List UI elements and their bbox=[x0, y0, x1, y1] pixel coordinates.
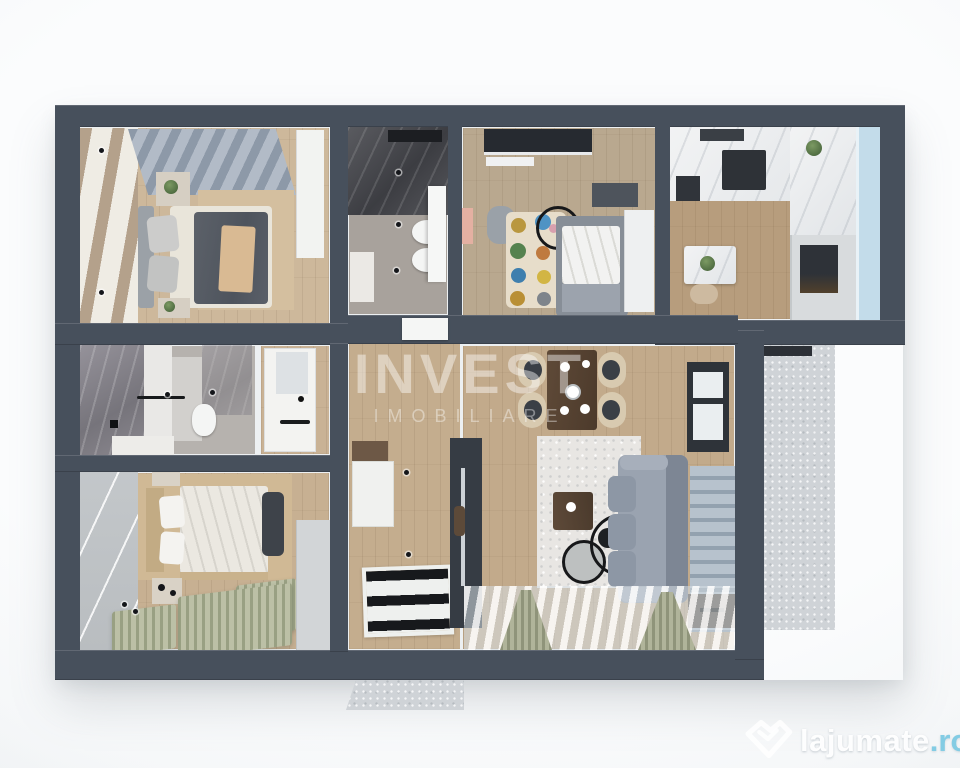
sofa-armrest bbox=[620, 455, 668, 470]
kitchen-chair bbox=[690, 284, 718, 304]
kitchen-cooktop bbox=[722, 150, 766, 190]
bedroom2-frame-edge bbox=[180, 572, 268, 580]
bedroom2-curtain bbox=[112, 604, 176, 656]
entrance-doormat bbox=[362, 564, 454, 637]
balcony-slab bbox=[762, 345, 835, 630]
wall-north bbox=[55, 105, 905, 127]
wall-kids-kitchen bbox=[655, 105, 670, 320]
wood-sculpture bbox=[454, 506, 465, 536]
rug-dot bbox=[511, 268, 526, 283]
wall-east-kitchen bbox=[880, 105, 905, 345]
kitchen-oven bbox=[800, 245, 838, 293]
plant-icon bbox=[164, 180, 178, 194]
bedroom2-pillow bbox=[159, 495, 186, 529]
ceiling-spot-icon bbox=[122, 602, 127, 607]
window-pane bbox=[693, 372, 723, 398]
bedroom1-pillow bbox=[146, 215, 180, 254]
plant-icon bbox=[700, 256, 715, 271]
kitchen-appliance bbox=[676, 176, 700, 201]
bedroom2-duvet bbox=[180, 486, 268, 576]
kitchen-hood bbox=[700, 129, 744, 141]
kidsroom-window bbox=[484, 129, 592, 155]
bathroom1-bathmat bbox=[388, 130, 442, 142]
rug-dot bbox=[537, 292, 551, 306]
floorplan-render: INVEST IMOBILIARE lajumate.ro bbox=[0, 0, 960, 768]
kidsroom-desk-shelf bbox=[486, 157, 534, 166]
bedroom2-bench bbox=[262, 492, 284, 556]
ceiling-spot-icon bbox=[133, 609, 138, 614]
lajumate-heart-icon bbox=[742, 717, 794, 766]
plant-icon bbox=[806, 140, 822, 156]
logo-tld-text: .ro bbox=[930, 723, 960, 759]
kidsroom-blanket bbox=[562, 284, 620, 312]
bathroom1-vanity bbox=[350, 252, 374, 302]
ac-unit bbox=[764, 346, 812, 356]
bathroom2-toilet bbox=[192, 404, 216, 436]
ceiling-spot-icon bbox=[99, 148, 104, 153]
ceiling-spot-icon bbox=[210, 390, 215, 395]
hallway-console bbox=[352, 461, 394, 527]
bathroom2-vanity bbox=[112, 436, 174, 456]
ceiling-spot-icon bbox=[404, 470, 409, 475]
logo-brand-text: lajumate bbox=[800, 723, 930, 759]
hallway-wood-box bbox=[352, 441, 388, 461]
kidsroom-headboard bbox=[592, 183, 638, 207]
rug-dot bbox=[537, 270, 551, 284]
wall-mid-west bbox=[55, 323, 348, 345]
sofa-cushion bbox=[608, 551, 636, 587]
bedroom1-blue-rug bbox=[128, 129, 296, 195]
window-pane bbox=[693, 404, 723, 440]
kitchen-counter-right bbox=[790, 127, 858, 235]
bathroom1-door bbox=[428, 186, 446, 282]
wall-west bbox=[55, 105, 80, 680]
vase bbox=[566, 502, 576, 512]
site-logo: lajumate.ro bbox=[742, 716, 956, 766]
kitchen-window bbox=[856, 127, 880, 323]
bedroom1-throw-blanket bbox=[218, 225, 255, 293]
wall-bedroom1-bath1 bbox=[330, 105, 348, 343]
sofa-cushion bbox=[608, 514, 636, 550]
towel-rail bbox=[137, 396, 185, 399]
bedroom1-closet bbox=[296, 130, 324, 258]
rug-dot bbox=[510, 243, 526, 259]
wall-south bbox=[55, 650, 764, 680]
ceiling-spot-icon bbox=[99, 290, 104, 295]
sofa-cushion bbox=[608, 476, 636, 512]
lamp-dot bbox=[170, 590, 176, 596]
shower-fixture bbox=[110, 420, 118, 428]
ceiling-spot-icon bbox=[394, 268, 399, 273]
watermark-subtitle: IMOBILIARE bbox=[298, 406, 642, 427]
rug-dot bbox=[511, 218, 526, 233]
ceiling-spot-icon bbox=[396, 170, 401, 175]
rug-dot bbox=[536, 246, 550, 260]
sofa-backrest bbox=[666, 455, 688, 603]
ceiling-spot-icon bbox=[396, 222, 401, 227]
bedroom1-slatted-wardrobe bbox=[80, 128, 138, 324]
plant-icon bbox=[164, 301, 175, 312]
wall-bath1-kids bbox=[448, 105, 462, 343]
watermark-title: INVEST bbox=[298, 346, 642, 402]
wall-living-east bbox=[735, 330, 764, 660]
bathroom1-hall-door bbox=[402, 318, 448, 340]
bedroom2-wardrobe bbox=[296, 520, 330, 650]
bedroom2-nightstand bbox=[152, 472, 180, 486]
watermark: INVEST IMOBILIARE bbox=[298, 346, 642, 427]
kidsroom-wardrobe bbox=[624, 210, 654, 312]
bedroom2-pillow bbox=[159, 531, 185, 565]
kidsroom-salmon-wall bbox=[462, 208, 473, 244]
rug-dot bbox=[510, 291, 525, 306]
kidsroom-duvet bbox=[562, 226, 620, 284]
lamp-dot bbox=[158, 584, 165, 591]
ceiling-spot-icon bbox=[406, 552, 411, 557]
bedroom1-pillow bbox=[146, 255, 179, 293]
wall-bath2-bedroom2 bbox=[55, 455, 348, 472]
ceiling-spot-icon bbox=[165, 392, 170, 397]
